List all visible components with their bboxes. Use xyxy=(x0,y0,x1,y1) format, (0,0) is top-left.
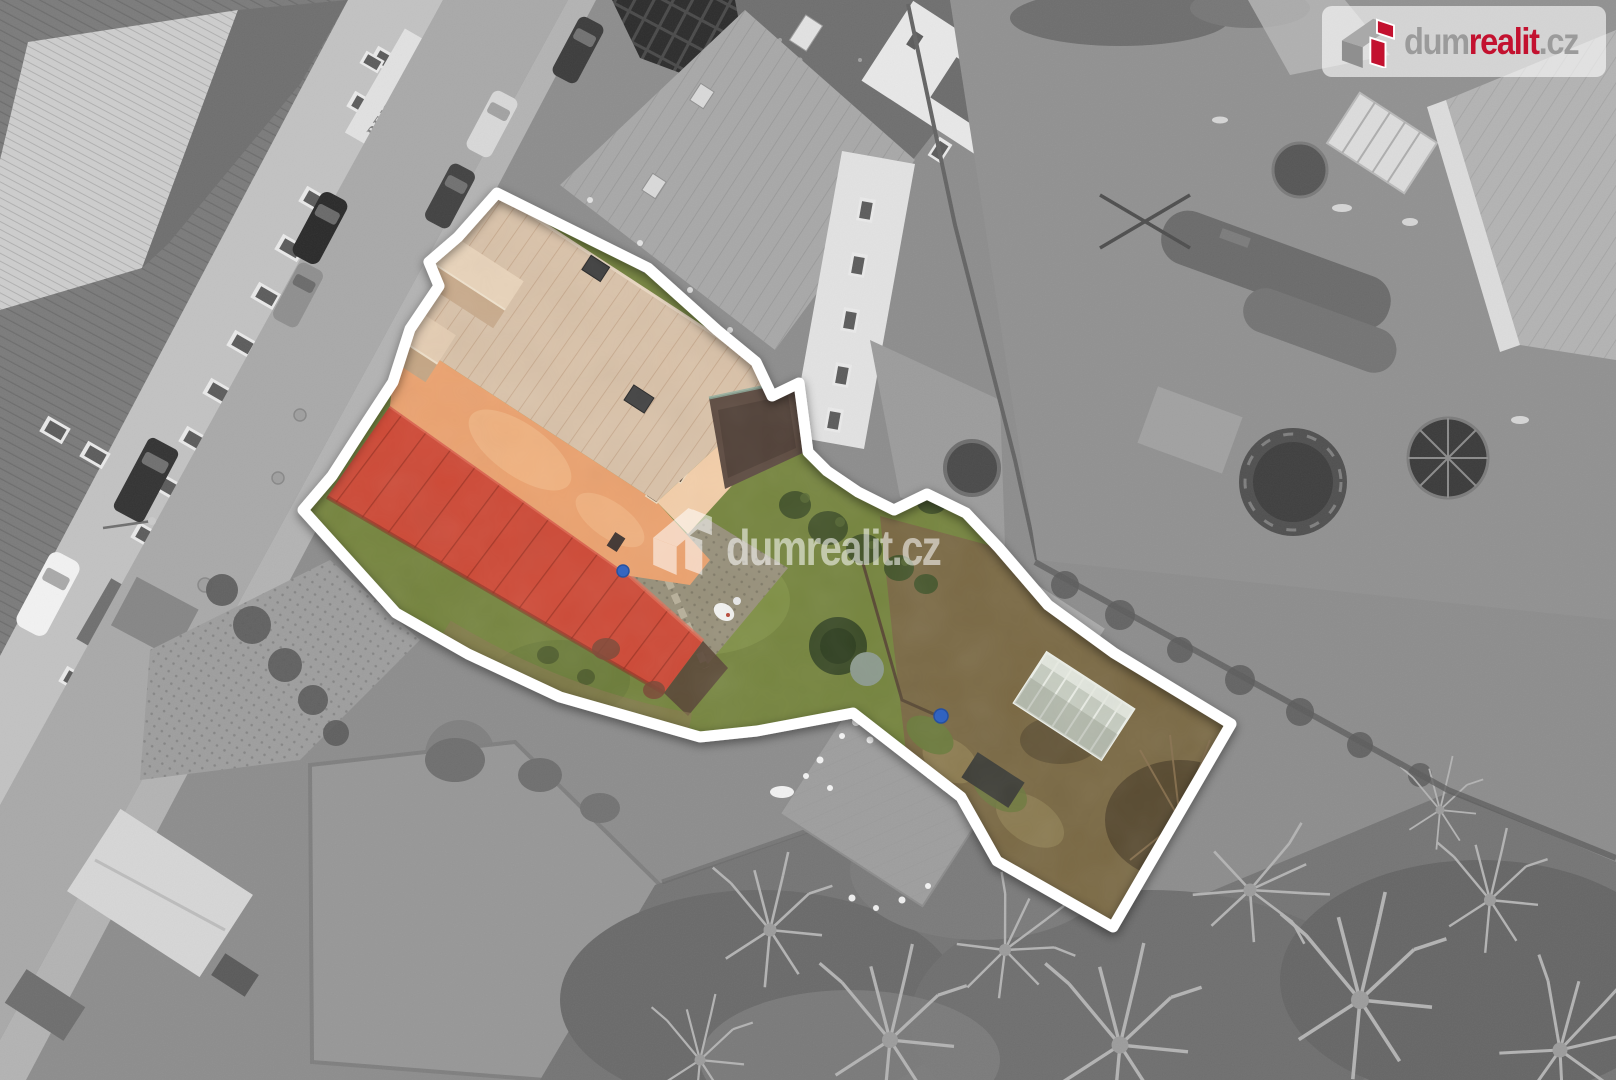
logo-text-realit: realit xyxy=(1469,21,1539,62)
dumrealit-logo-icon xyxy=(1339,15,1396,68)
logo-text-dum: dum xyxy=(1404,21,1469,62)
dumrealit-logo-badge: dumrealit.cz xyxy=(1322,6,1606,77)
logo-text-cz: .cz xyxy=(1539,21,1578,62)
aerial-scene: PENZION xyxy=(0,0,1616,1080)
logo-text: dumrealit.cz xyxy=(1404,23,1578,60)
aerial-property-photo: PENZION xyxy=(0,0,1616,1080)
